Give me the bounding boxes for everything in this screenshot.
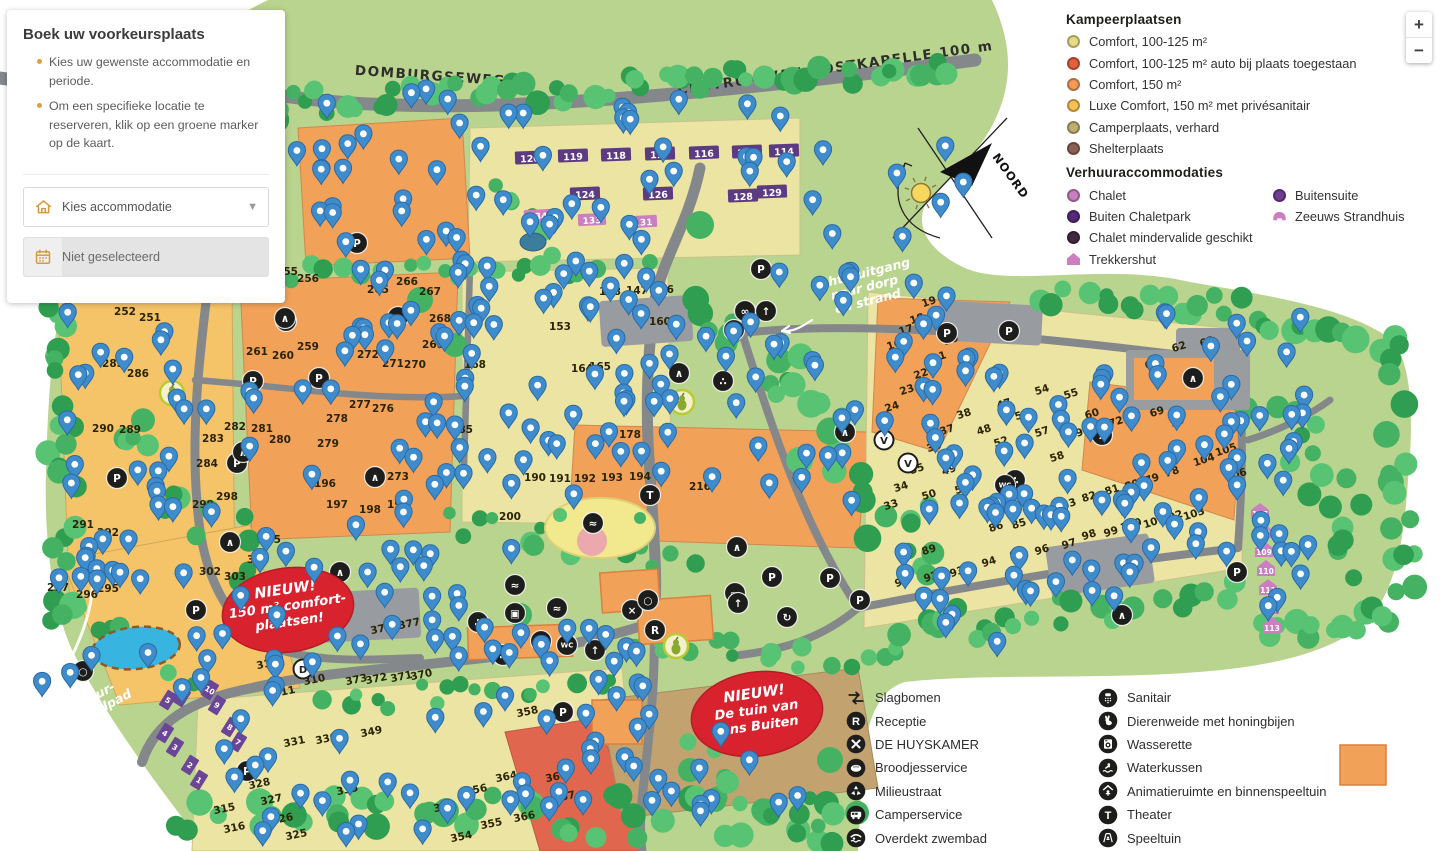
svg-text:P: P [1233, 567, 1241, 579]
svg-text:194: 194 [629, 471, 651, 483]
svg-text:178: 178 [619, 429, 641, 441]
svg-text:∧: ∧ [1118, 610, 1127, 622]
legend-facility-item: Dierenweide met honingbijen [1098, 709, 1441, 732]
svg-text:∧: ∧ [675, 368, 684, 380]
svg-text:191: 191 [549, 473, 571, 485]
sun-icon [912, 184, 931, 203]
map-marker[interactable] [34, 672, 51, 696]
svg-text:116: 116 [694, 149, 715, 161]
accommodation-select-value: Kies accommodatie [62, 200, 247, 214]
svg-text:P: P [826, 573, 834, 585]
legend-rental-item-swatch [1066, 209, 1081, 224]
svg-text:200: 200 [499, 511, 521, 523]
svg-text:R: R [651, 625, 659, 637]
svg-text:190: 190 [524, 472, 546, 484]
svg-text:290: 290 [92, 423, 114, 435]
svg-text:∧: ∧ [1189, 373, 1198, 385]
svg-text:276: 276 [372, 403, 394, 415]
legend-rental-item: Trekkershut [1066, 249, 1272, 270]
svg-text:○: ○ [643, 595, 652, 607]
legend-facility-item: Waterkussen [1098, 756, 1441, 779]
legend-camp-item-label: Luxe Comfort, 150 m² met privésanitair [1089, 98, 1310, 113]
svg-text:P: P [943, 328, 951, 340]
svg-text:284: 284 [196, 458, 218, 470]
svg-text:119: 119 [563, 152, 583, 164]
svg-text:302: 302 [199, 566, 221, 578]
legend-camp-item: Luxe Comfort, 150 m² met privésanitair [1066, 95, 1438, 116]
svg-text:256: 256 [297, 273, 319, 285]
svg-text:291: 291 [72, 519, 94, 531]
legend-facility-item: Camperservice [846, 803, 1098, 826]
facility-label: Animatieruimte en binnenspeeltuin [1127, 784, 1326, 799]
sanitair-icon [1098, 688, 1118, 708]
map-canvas[interactable]: DOMBURGSEWEGCENTRUM VAN OOSTKAPELLE 100 … [0, 0, 1441, 851]
legend-rental-item-label: Buitensuite [1295, 188, 1358, 203]
svg-text:252: 252 [114, 306, 136, 318]
svg-text:303: 303 [224, 571, 246, 583]
park-logo-icon [664, 634, 688, 658]
zoom-controls: + − [1406, 12, 1432, 63]
wasserette-icon [1098, 734, 1118, 754]
legend-camp-item: Comfort, 100-125 m² [1066, 31, 1438, 52]
facility-label: Broodjesservice [875, 760, 968, 775]
svg-text:∧: ∧ [733, 542, 742, 554]
svg-text:∧: ∧ [281, 313, 290, 325]
slagbomen-icon [846, 688, 866, 708]
svg-text:283: 283 [202, 433, 224, 445]
svg-text:NOORD: NOORD [990, 151, 1032, 202]
waterkussen-icon [1098, 758, 1118, 778]
home-icon [24, 199, 62, 215]
facility-label: Speeltuin [1127, 831, 1181, 846]
svg-text:V: V [904, 459, 912, 470]
legend-facility-item: Slagbomen [846, 686, 1098, 709]
chevron-down-icon: ▼ [247, 201, 268, 213]
svg-text:251: 251 [139, 312, 161, 324]
svg-text:↻: ↻ [783, 612, 792, 624]
svg-text:298: 298 [216, 491, 238, 503]
theater-icon: T [1098, 805, 1118, 825]
svg-text:278: 278 [326, 413, 348, 425]
svg-text:↑: ↑ [591, 645, 600, 657]
legend-accommodations: Kampeerplaatsen Comfort, 100-125 m²Comfo… [1066, 12, 1438, 270]
svg-text:≈: ≈ [511, 580, 520, 592]
svg-text:∧: ∧ [226, 537, 235, 549]
legend-facility-item: Wasserette [1098, 733, 1441, 756]
svg-text:P: P [1005, 326, 1013, 338]
period-field[interactable]: Niet geselecteerd [23, 237, 269, 277]
dieren-icon [1098, 711, 1118, 731]
svg-text:P: P [757, 264, 765, 276]
facility-label: Dierenweide met honingbijen [1127, 714, 1295, 729]
svg-text:270: 270 [404, 359, 426, 371]
facility-label: Receptie [875, 714, 926, 729]
svg-text:128: 128 [733, 192, 754, 204]
legend-facility-item: Broodjesservice [846, 756, 1098, 779]
svg-text:261: 261 [246, 346, 268, 358]
receptie-icon: R [846, 711, 866, 731]
instruction-item: Kies uw gewenste accommodatie en periode… [37, 53, 269, 90]
legend-camp-item-swatch [1066, 34, 1081, 49]
svg-text:192: 192 [574, 473, 596, 485]
milieu-icon [846, 781, 866, 801]
legend-rental-item-swatch [1066, 252, 1081, 267]
svg-text:280: 280 [269, 434, 291, 446]
svg-text:R: R [852, 716, 860, 728]
svg-text:286: 286 [127, 368, 149, 380]
legend-camp-item-swatch [1066, 120, 1081, 135]
svg-text:P: P [856, 595, 864, 607]
speeltuin-icon [1098, 828, 1118, 848]
svg-text:↑: ↑ [762, 306, 771, 318]
legend-facility-item: Milieustraat [846, 780, 1098, 803]
svg-text:197: 197 [326, 499, 348, 511]
legend-rental-item: Chalet mindervalide geschikt [1066, 227, 1272, 248]
map-marker[interactable] [955, 173, 972, 197]
legend-camp-item-swatch [1066, 77, 1081, 92]
instruction-item: Om een specifieke locatie te reserveren,… [37, 97, 269, 153]
legend-camp-item: Camperplaats, verhard [1066, 117, 1438, 138]
svg-text:266: 266 [396, 276, 418, 288]
legend-facility-item: Overdekt zwembad [846, 826, 1098, 849]
svg-text:T: T [646, 490, 654, 502]
svg-text:P: P [315, 373, 323, 385]
zoom-out-button[interactable]: − [1406, 38, 1432, 63]
svg-text:282: 282 [224, 421, 246, 433]
legend-camp-item-label: Comfort, 100-125 m² auto bij plaats toeg… [1089, 56, 1356, 71]
legend-rental-item: Buiten Chaletpark [1066, 206, 1272, 227]
svg-text:○: ○ [78, 666, 87, 678]
svg-text:110: 110 [1258, 567, 1274, 576]
svg-text:∴: ∴ [719, 376, 726, 388]
legend-rental-item: Buitensuite [1272, 184, 1405, 205]
legend-camp-item-label: Comfort, 100-125 m² [1089, 34, 1207, 49]
svg-text:109: 109 [1256, 548, 1272, 557]
panel-title: Boek uw voorkeursplaats [23, 26, 269, 43]
legend-verhuur-title: Verhuuraccommodaties [1066, 165, 1438, 180]
map-marker[interactable] [62, 664, 79, 688]
map-marker[interactable] [932, 193, 949, 217]
legend-facility-item: DE HUYSKAMER [846, 733, 1098, 756]
svg-text:268: 268 [429, 313, 451, 325]
divider [23, 174, 269, 175]
svg-text:P: P [768, 572, 776, 584]
period-field-value: Niet geselecteerd [62, 250, 268, 264]
legend-rental-item-label: Trekkershut [1089, 252, 1156, 267]
brood-icon [846, 758, 866, 778]
facility-label: Slagbomen [875, 690, 941, 705]
svg-text:V: V [880, 436, 888, 447]
legend-camp-item-label: Camperplaats, verhard [1089, 120, 1219, 135]
svg-text:129: 129 [762, 188, 782, 200]
svg-text:118: 118 [606, 151, 627, 163]
calendar-icon [24, 238, 62, 276]
svg-text:P: P [113, 473, 121, 485]
legend-rental-item-label: Chalet mindervalide geschikt [1089, 230, 1253, 245]
zoom-in-button[interactable]: + [1406, 12, 1432, 38]
legend-camp-item: Comfort, 100-125 m² auto bij plaats toeg… [1066, 52, 1438, 73]
legend-kampeerplaatsen-title: Kampeerplaatsen [1066, 12, 1438, 27]
legend-rental-item-swatch [1066, 230, 1081, 245]
svg-text:193: 193 [601, 472, 623, 484]
legend-camp-item-swatch [1066, 98, 1081, 113]
legend-camp-item-label: Shelterplaats [1089, 141, 1164, 156]
svg-text:∧: ∧ [371, 472, 380, 484]
svg-text:260: 260 [272, 350, 294, 362]
facility-label: Wasserette [1127, 737, 1192, 752]
legend-facility-item: TTheater [1098, 803, 1441, 826]
facility-label: Milieustraat [875, 784, 941, 799]
legend-rental-item-label: Chalet [1089, 188, 1126, 203]
svg-text:153: 153 [549, 321, 571, 333]
panel-instructions: Kies uw gewenste accommodatie en periode… [23, 53, 269, 164]
svg-text:113: 113 [1264, 624, 1280, 633]
facility-label: Theater [1127, 807, 1172, 822]
svg-text:267: 267 [419, 286, 441, 298]
legend-camp-item: Shelterplaats [1066, 138, 1438, 159]
svg-text:P: P [192, 605, 200, 617]
legend-rental-item: Zeeuws Strandhuis [1272, 206, 1405, 227]
svg-text:×: × [628, 605, 637, 617]
legend-facility-item: Speeltuin [1098, 826, 1441, 849]
legend-rental-item-swatch [1272, 209, 1287, 224]
legend-rental-item-swatch [1272, 188, 1287, 203]
svg-text:▣: ▣ [510, 608, 520, 620]
svg-text:≈: ≈ [553, 603, 562, 615]
legend-camp-item-swatch [1066, 56, 1081, 71]
huyskamer-icon [846, 734, 866, 754]
legend-camp-item: Comfort, 150 m² [1066, 74, 1438, 95]
svg-text:279: 279 [317, 438, 339, 450]
legend-rental-item-swatch [1066, 188, 1081, 203]
booking-panel: Boek uw voorkeursplaats Kies uw gewenste… [7, 10, 285, 303]
legend-facilities: SlagbomenRReceptieDE HUYSKAMERBroodjesse… [846, 686, 1441, 850]
facility-label: Waterkussen [1127, 760, 1202, 775]
svg-text:198: 198 [359, 504, 381, 516]
facility-label: DE HUYSKAMER [875, 737, 979, 752]
svg-text:273: 273 [387, 471, 409, 483]
legend-camp-item-swatch [1066, 141, 1081, 156]
legend-facility-item: Sanitair [1098, 686, 1441, 709]
animatie-icon [1098, 781, 1118, 801]
svg-text:259: 259 [297, 341, 319, 353]
svg-text:↑: ↑ [734, 598, 743, 610]
svg-text:P: P [559, 707, 567, 719]
facility-label: Overdekt zwembad [875, 831, 987, 846]
svg-text:272: 272 [357, 349, 379, 361]
facility-label: Camperservice [875, 807, 962, 822]
legend-rental-item-label: Zeeuws Strandhuis [1295, 209, 1405, 224]
svg-text:≈: ≈ [589, 518, 598, 530]
svg-text:277: 277 [349, 399, 371, 411]
camper-icon [846, 805, 866, 825]
legend-facility-item: RReceptie [846, 709, 1098, 732]
svg-text:289: 289 [119, 424, 141, 436]
legend-rental-item-label: Buiten Chaletpark [1089, 209, 1191, 224]
accommodation-select[interactable]: Kies accommodatie ▼ [23, 187, 269, 227]
legend-facility-item: Animatieruimte en binnenspeeltuin [1098, 780, 1441, 803]
legend-camp-item-label: Comfort, 150 m² [1089, 77, 1181, 92]
facility-label: Sanitair [1127, 690, 1171, 705]
zwembad-icon [846, 828, 866, 848]
svg-text:T: T [1105, 810, 1112, 822]
legend-rental-item: Chalet [1066, 184, 1272, 205]
